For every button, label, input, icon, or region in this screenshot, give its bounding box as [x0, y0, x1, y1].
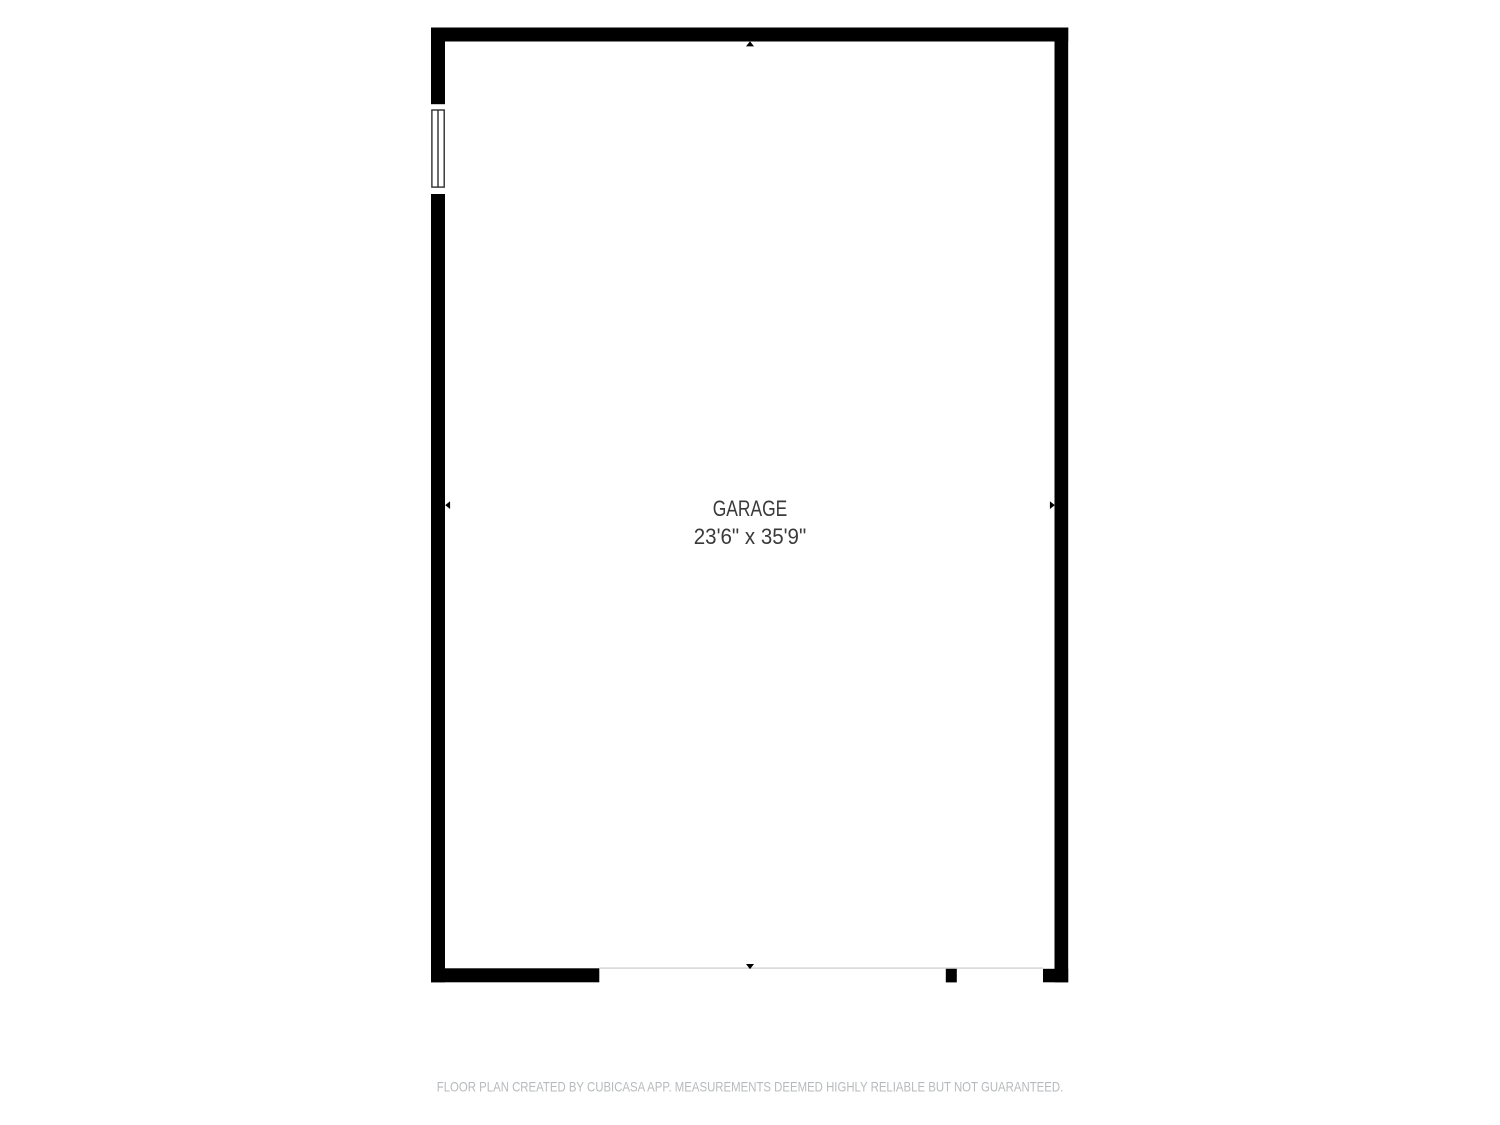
svg-text:FLOOR PLAN CREATED BY CUBICASA: FLOOR PLAN CREATED BY CUBICASA APP. MEAS…	[437, 1080, 1064, 1095]
svg-text:23'6" x 35'9": 23'6" x 35'9"	[694, 524, 807, 549]
svg-text:GARAGE: GARAGE	[713, 496, 788, 521]
